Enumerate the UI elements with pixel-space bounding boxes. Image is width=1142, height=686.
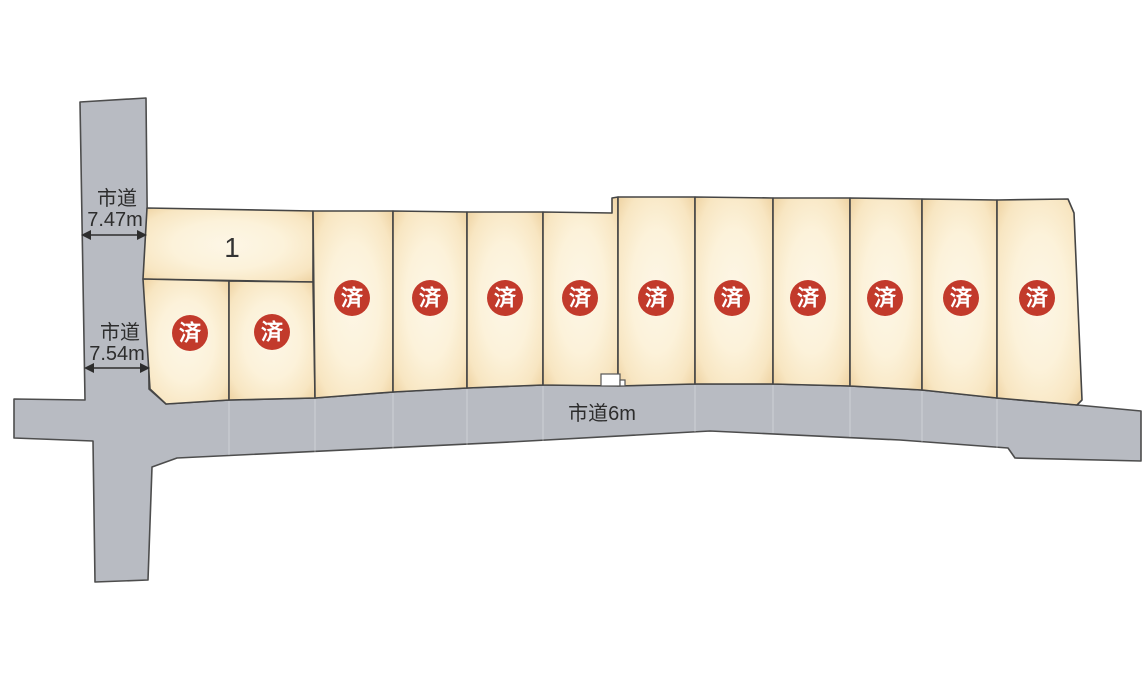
plot-1: 1 [143, 208, 313, 282]
plot-8-sold-badge: 済 [638, 280, 674, 316]
sold-badge-text: 済 [874, 286, 897, 311]
plot-11: 済 [850, 198, 922, 390]
plot-13: 済 [997, 199, 1082, 405]
sold-badge-text: 済 [419, 286, 442, 311]
plot-10: 済 [773, 198, 850, 386]
plot-10-sold-badge: 済 [790, 280, 826, 316]
plot-3: 済 [229, 281, 315, 400]
road-bottom-name: 市道6m [568, 402, 636, 425]
road-left-upper-width: 7.47m [87, 209, 143, 231]
plot-5-sold-badge: 済 [412, 280, 448, 316]
plot-1-number: 1 [224, 232, 240, 263]
plot-8: 済 [618, 197, 695, 386]
plot-11-sold-badge: 済 [867, 280, 903, 316]
sold-badge-text: 済 [494, 286, 517, 311]
plot-7-sold-badge: 済 [562, 280, 598, 316]
road-left-upper-name: 市道 [97, 187, 137, 210]
plot-4-sold-badge: 済 [334, 280, 370, 316]
sold-badge-text: 済 [721, 286, 744, 311]
sold-badge-text: 済 [179, 321, 202, 346]
plot-12: 済 [922, 199, 997, 398]
plot-9: 済 [695, 197, 773, 384]
sold-badge-text: 済 [645, 286, 668, 311]
sold-badge-text: 済 [1026, 286, 1049, 311]
sold-badge-text: 済 [950, 286, 973, 311]
plot-9-sold-badge: 済 [714, 280, 750, 316]
plot-7: 済 [543, 197, 618, 386]
sold-badge-text: 済 [261, 320, 284, 345]
plot-3-sold-badge: 済 [254, 314, 290, 350]
plot-5: 済 [393, 211, 467, 392]
lot-map-page: 1 済 済 [0, 0, 1142, 686]
sold-badge-text: 済 [341, 286, 364, 311]
utility-notch-rect [601, 374, 620, 386]
plot-13-sold-badge: 済 [1019, 280, 1055, 316]
sold-badge-text: 済 [797, 286, 820, 311]
utility-notch-tab [620, 380, 625, 386]
site-plan-canvas: 1 済 済 [0, 0, 1142, 686]
plot-2: 済 [143, 279, 229, 404]
road-left-lower-name: 市道 [100, 321, 140, 344]
plot-2-sold-badge: 済 [172, 315, 208, 351]
plot-6-sold-badge: 済 [487, 280, 523, 316]
plot-12-sold-badge: 済 [943, 280, 979, 316]
sold-badge-text: 済 [569, 286, 592, 311]
plot-6: 済 [467, 212, 543, 388]
plot-4: 済 [313, 211, 393, 398]
road-left-lower-width: 7.54m [89, 343, 145, 365]
